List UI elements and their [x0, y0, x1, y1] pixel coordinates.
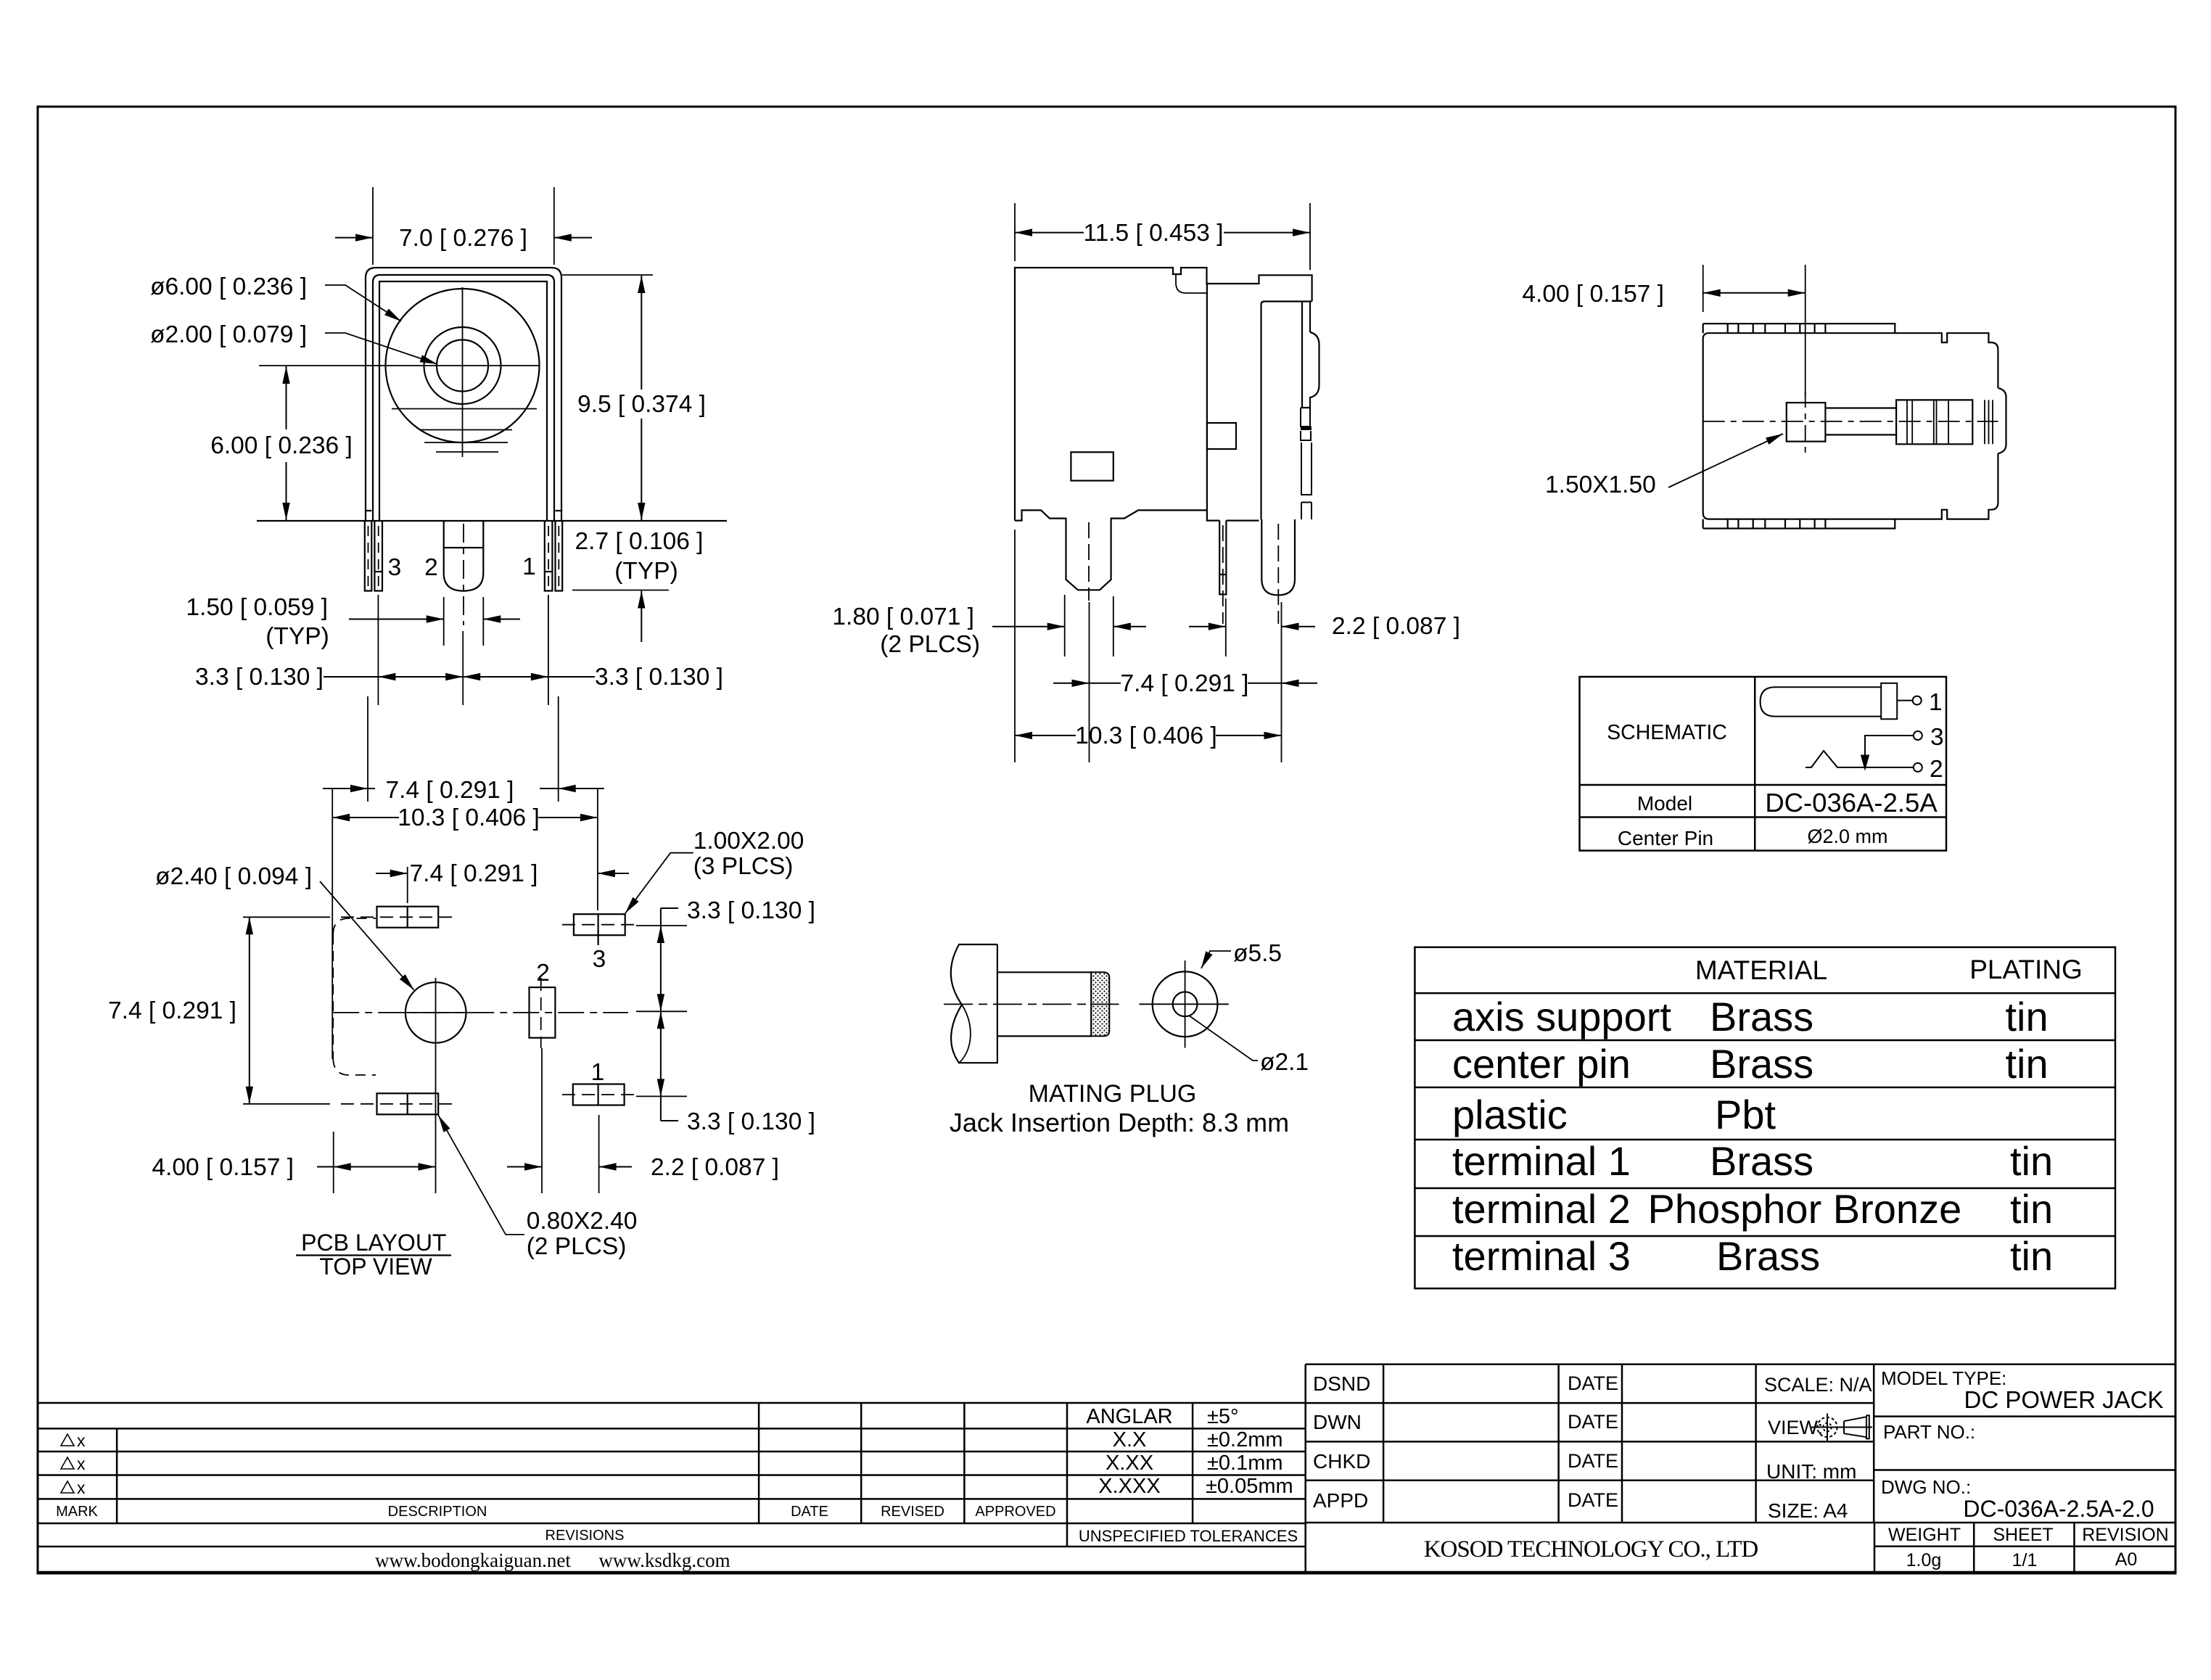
svg-text:Jack Insertion Depth: 8.3 mm: Jack Insertion Depth: 8.3 mm [950, 1108, 1289, 1137]
svg-text:DWN: DWN [1313, 1411, 1362, 1433]
svg-text:Model: Model [1637, 792, 1692, 815]
svg-text:X.XXX: X.XXX [1098, 1475, 1160, 1498]
svg-text:4.00 [ 0.157 ]: 4.00 [ 0.157 ] [152, 1154, 294, 1181]
svg-text:DWG NO.:: DWG NO.: [1881, 1476, 1971, 1498]
svg-text:7.4 [ 0.291 ]: 7.4 [ 0.291 ] [386, 777, 514, 804]
svg-text:7.0 [ 0.276 ]: 7.0 [ 0.276 ] [399, 225, 527, 252]
svg-text:ø2.00 [ 0.079 ]: ø2.00 [ 0.079 ] [150, 321, 307, 348]
svg-text:UNSPECIFIED TOLERANCES: UNSPECIFIED TOLERANCES [1079, 1527, 1298, 1545]
svg-text:11.5 [ 0.453 ]: 11.5 [ 0.453 ] [1083, 220, 1223, 247]
svg-text:1.00X2.00: 1.00X2.00 [693, 828, 804, 855]
svg-text:SCHEMATIC: SCHEMATIC [1607, 721, 1727, 744]
svg-text:4.00 [ 0.157 ]: 4.00 [ 0.157 ] [1522, 281, 1664, 308]
svg-text:terminal 3: terminal 3 [1452, 1233, 1631, 1279]
svg-text:7.4 [ 0.291 ]: 7.4 [ 0.291 ] [410, 860, 538, 887]
svg-text:0.80X2.40: 0.80X2.40 [527, 1208, 638, 1235]
svg-text:axis support: axis support [1452, 994, 1671, 1039]
svg-text:2: 2 [424, 554, 438, 581]
svg-text:plastic: plastic [1452, 1092, 1568, 1137]
svg-text:CHKD: CHKD [1313, 1450, 1370, 1473]
svg-text:(2 PLCS): (2 PLCS) [880, 631, 980, 658]
svg-text:±5°: ±5° [1207, 1405, 1239, 1428]
svg-text:x: x [77, 1478, 86, 1497]
svg-text:DSND: DSND [1313, 1372, 1370, 1395]
svg-text:ø2.40 [ 0.094 ]: ø2.40 [ 0.094 ] [155, 863, 312, 890]
svg-text:ø5.5: ø5.5 [1233, 940, 1282, 967]
svg-text:UNIT: mm: UNIT: mm [1766, 1460, 1856, 1483]
svg-text:DC POWER JACK: DC POWER JACK [1964, 1386, 2163, 1413]
svg-text:7.4 [ 0.291 ]: 7.4 [ 0.291 ] [1121, 670, 1249, 697]
svg-text:10.3 [ 0.406 ]: 10.3 [ 0.406 ] [1075, 722, 1217, 749]
svg-text:www.bodongkaiguan.net: www.bodongkaiguan.net [375, 1549, 571, 1571]
svg-text:DESCRIPTION: DESCRIPTION [388, 1504, 487, 1520]
svg-text:DATE: DATE [1568, 1411, 1618, 1433]
svg-text:2: 2 [1930, 756, 1943, 783]
svg-text:SCALE: N/A: SCALE: N/A [1764, 1374, 1872, 1396]
svg-text:3.3 [ 0.130 ]: 3.3 [ 0.130 ] [595, 664, 723, 691]
svg-text:(TYP): (TYP) [265, 623, 329, 650]
svg-text:DATE: DATE [1568, 1372, 1618, 1394]
svg-text:terminal 1: terminal 1 [1452, 1138, 1631, 1184]
svg-text:ø2.1: ø2.1 [1260, 1049, 1309, 1076]
svg-text:APPD: APPD [1313, 1489, 1368, 1512]
svg-text:2.2 [ 0.087 ]: 2.2 [ 0.087 ] [651, 1154, 779, 1181]
svg-text:tin: tin [2010, 1233, 2053, 1279]
svg-text:9.5 [ 0.374 ]: 9.5 [ 0.374 ] [577, 391, 706, 418]
svg-text:ø6.00 [ 0.236 ]: ø6.00 [ 0.236 ] [150, 273, 307, 300]
svg-text:center pin: center pin [1452, 1041, 1631, 1087]
svg-text:MATERIAL: MATERIAL [1695, 955, 1827, 985]
svg-text:3: 3 [1930, 724, 1944, 751]
svg-text:WEIGHT: WEIGHT [1888, 1525, 1961, 1545]
svg-text:KOSOD TECHNOLOGY CO., LTD: KOSOD TECHNOLOGY CO., LTD [1424, 1536, 1758, 1562]
svg-text:PLATING: PLATING [1969, 955, 2083, 984]
svg-text:1.0g: 1.0g [1906, 1550, 1942, 1570]
svg-text:Brass: Brass [1710, 994, 1813, 1039]
svg-text:1/1: 1/1 [2012, 1550, 2038, 1570]
svg-text:DATE: DATE [1568, 1450, 1618, 1472]
svg-text:1.80 [ 0.071 ]: 1.80 [ 0.071 ] [832, 604, 974, 630]
svg-text:3.3 [ 0.130 ]: 3.3 [ 0.130 ] [687, 897, 815, 924]
svg-text:2: 2 [536, 960, 550, 987]
svg-text:Brass: Brass [1716, 1233, 1820, 1279]
svg-text:3: 3 [593, 946, 606, 973]
svg-text:1: 1 [522, 553, 536, 580]
svg-text:2.7 [ 0.106 ]: 2.7 [ 0.106 ] [575, 528, 704, 555]
svg-text:6.00 [ 0.236 ]: 6.00 [ 0.236 ] [210, 432, 353, 459]
svg-text:x: x [77, 1431, 86, 1450]
svg-text:Pbt: Pbt [1715, 1092, 1776, 1137]
svg-text:3.3 [ 0.130 ]: 3.3 [ 0.130 ] [687, 1108, 815, 1135]
svg-text:7.4 [ 0.291 ]: 7.4 [ 0.291 ] [108, 997, 236, 1024]
svg-text:Phosphor Bronze: Phosphor Bronze [1648, 1186, 1962, 1232]
svg-text:www.ksdkg.com: www.ksdkg.com [598, 1549, 730, 1571]
svg-text:Center Pin: Center Pin [1618, 827, 1713, 849]
svg-text:tin: tin [2006, 1041, 2049, 1087]
svg-text:terminal 2: terminal 2 [1452, 1186, 1631, 1232]
svg-text:1.50 [ 0.059 ]: 1.50 [ 0.059 ] [186, 594, 328, 621]
svg-text:DATE: DATE [791, 1504, 828, 1520]
svg-text:tin: tin [2006, 994, 2049, 1039]
svg-text:10.3 [ 0.406 ]: 10.3 [ 0.406 ] [398, 804, 540, 831]
svg-text:MARK: MARK [56, 1504, 98, 1520]
svg-text:DC-036A-2.5A-2.0: DC-036A-2.5A-2.0 [1963, 1496, 2154, 1522]
svg-text:±0.2mm: ±0.2mm [1207, 1428, 1283, 1452]
svg-text:1: 1 [591, 1059, 605, 1086]
svg-text:PCB LAYOUT: PCB LAYOUT [301, 1230, 446, 1256]
svg-text:x: x [77, 1454, 86, 1473]
svg-text:REVISION: REVISION [2082, 1525, 2168, 1545]
svg-text:1.50X1.50: 1.50X1.50 [1545, 472, 1656, 498]
svg-text:REVISED: REVISED [881, 1504, 944, 1520]
svg-text:Brass: Brass [1710, 1138, 1813, 1184]
svg-text:Ø2.0 mm: Ø2.0 mm [1807, 825, 1887, 847]
svg-text:tin: tin [2010, 1186, 2053, 1232]
svg-text:±0.05mm: ±0.05mm [1206, 1475, 1293, 1498]
svg-text:X.X: X.X [1113, 1428, 1147, 1452]
svg-text:±0.1mm: ±0.1mm [1207, 1452, 1283, 1475]
svg-text:(2 PLCS): (2 PLCS) [527, 1233, 627, 1260]
svg-text:X.XX: X.XX [1105, 1452, 1153, 1475]
svg-text:(3 PLCS): (3 PLCS) [693, 853, 794, 880]
svg-text:DATE: DATE [1568, 1489, 1618, 1511]
svg-text:2.2 [ 0.087 ]: 2.2 [ 0.087 ] [1332, 613, 1460, 640]
svg-text:tin: tin [2010, 1138, 2053, 1184]
svg-text:TOP VIEW: TOP VIEW [319, 1253, 432, 1280]
svg-text:MATING PLUG: MATING PLUG [1029, 1080, 1197, 1108]
svg-text:3: 3 [388, 554, 402, 581]
svg-text:REVISIONS: REVISIONS [545, 1528, 625, 1544]
svg-text:APPROVED: APPROVED [975, 1504, 1055, 1520]
svg-text:A0: A0 [2115, 1549, 2138, 1570]
svg-text:SHEET: SHEET [1993, 1525, 2053, 1545]
svg-text:1: 1 [1929, 689, 1943, 716]
svg-text:DC-036A-2.5A: DC-036A-2.5A [1765, 788, 1938, 818]
svg-text:ANGLAR: ANGLAR [1086, 1405, 1172, 1428]
svg-text:(TYP): (TYP) [614, 558, 678, 585]
svg-text:3.3 [ 0.130 ]: 3.3 [ 0.130 ] [195, 664, 324, 691]
svg-text:PART NO.:: PART NO.: [1883, 1421, 1975, 1443]
svg-text:Brass: Brass [1710, 1041, 1813, 1087]
svg-text:SIZE: A4: SIZE: A4 [1768, 1499, 1848, 1522]
